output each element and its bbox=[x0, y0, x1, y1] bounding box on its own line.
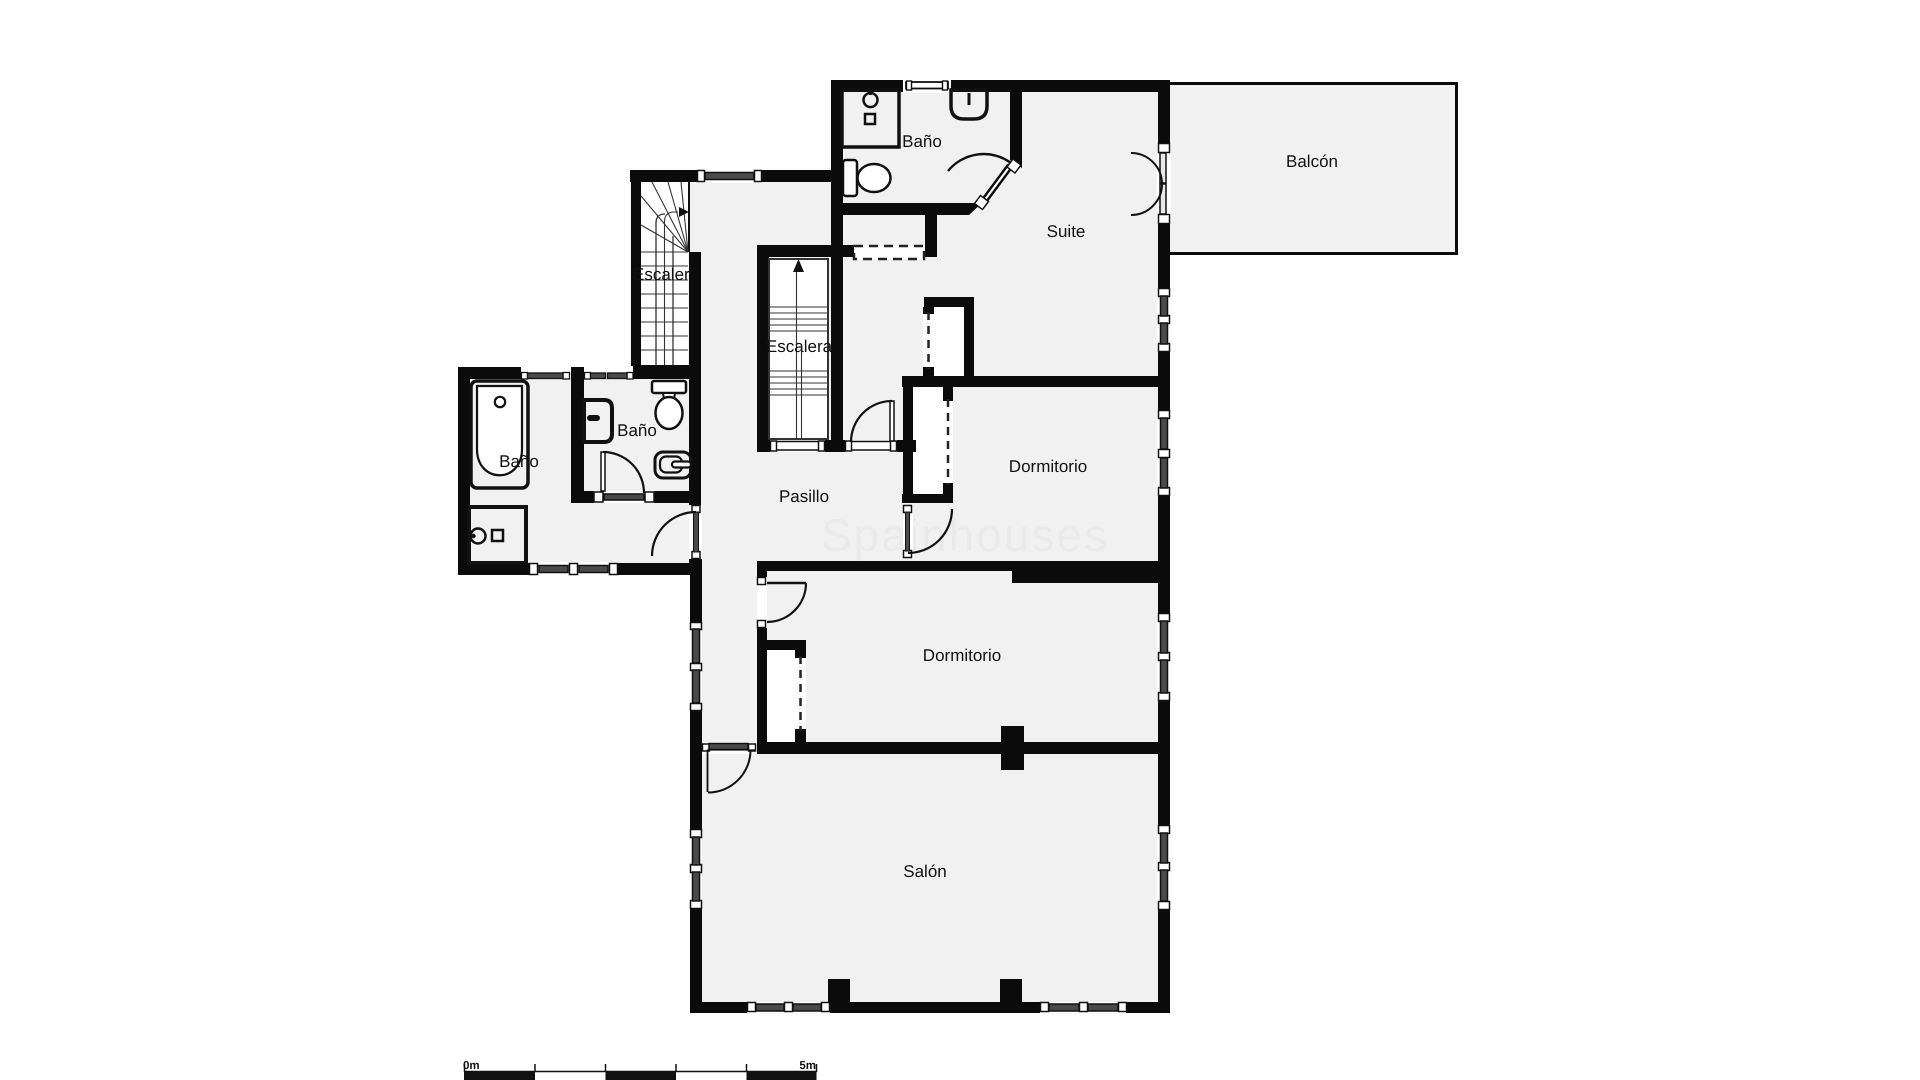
svg-text:Balcón: Balcón bbox=[1286, 152, 1338, 171]
svg-text:Baño: Baño bbox=[617, 421, 657, 440]
svg-text:Pasillo: Pasillo bbox=[779, 487, 829, 506]
svg-text:Suite: Suite bbox=[1047, 222, 1086, 241]
svg-text:Salón: Salón bbox=[903, 862, 946, 881]
svg-text:Escalera: Escalera bbox=[766, 337, 833, 356]
svg-text:Dormitorio: Dormitorio bbox=[1009, 457, 1087, 476]
svg-text:Baño: Baño bbox=[499, 452, 539, 471]
svg-text:0m: 0m bbox=[463, 1060, 480, 1072]
svg-text:Dormitorio: Dormitorio bbox=[923, 646, 1001, 665]
svg-text:Escaler: Escaler bbox=[633, 265, 690, 284]
svg-text:Baño: Baño bbox=[902, 132, 942, 151]
svg-text:Spainhouses: Spainhouses bbox=[821, 509, 1109, 561]
svg-text:5m: 5m bbox=[799, 1060, 816, 1072]
